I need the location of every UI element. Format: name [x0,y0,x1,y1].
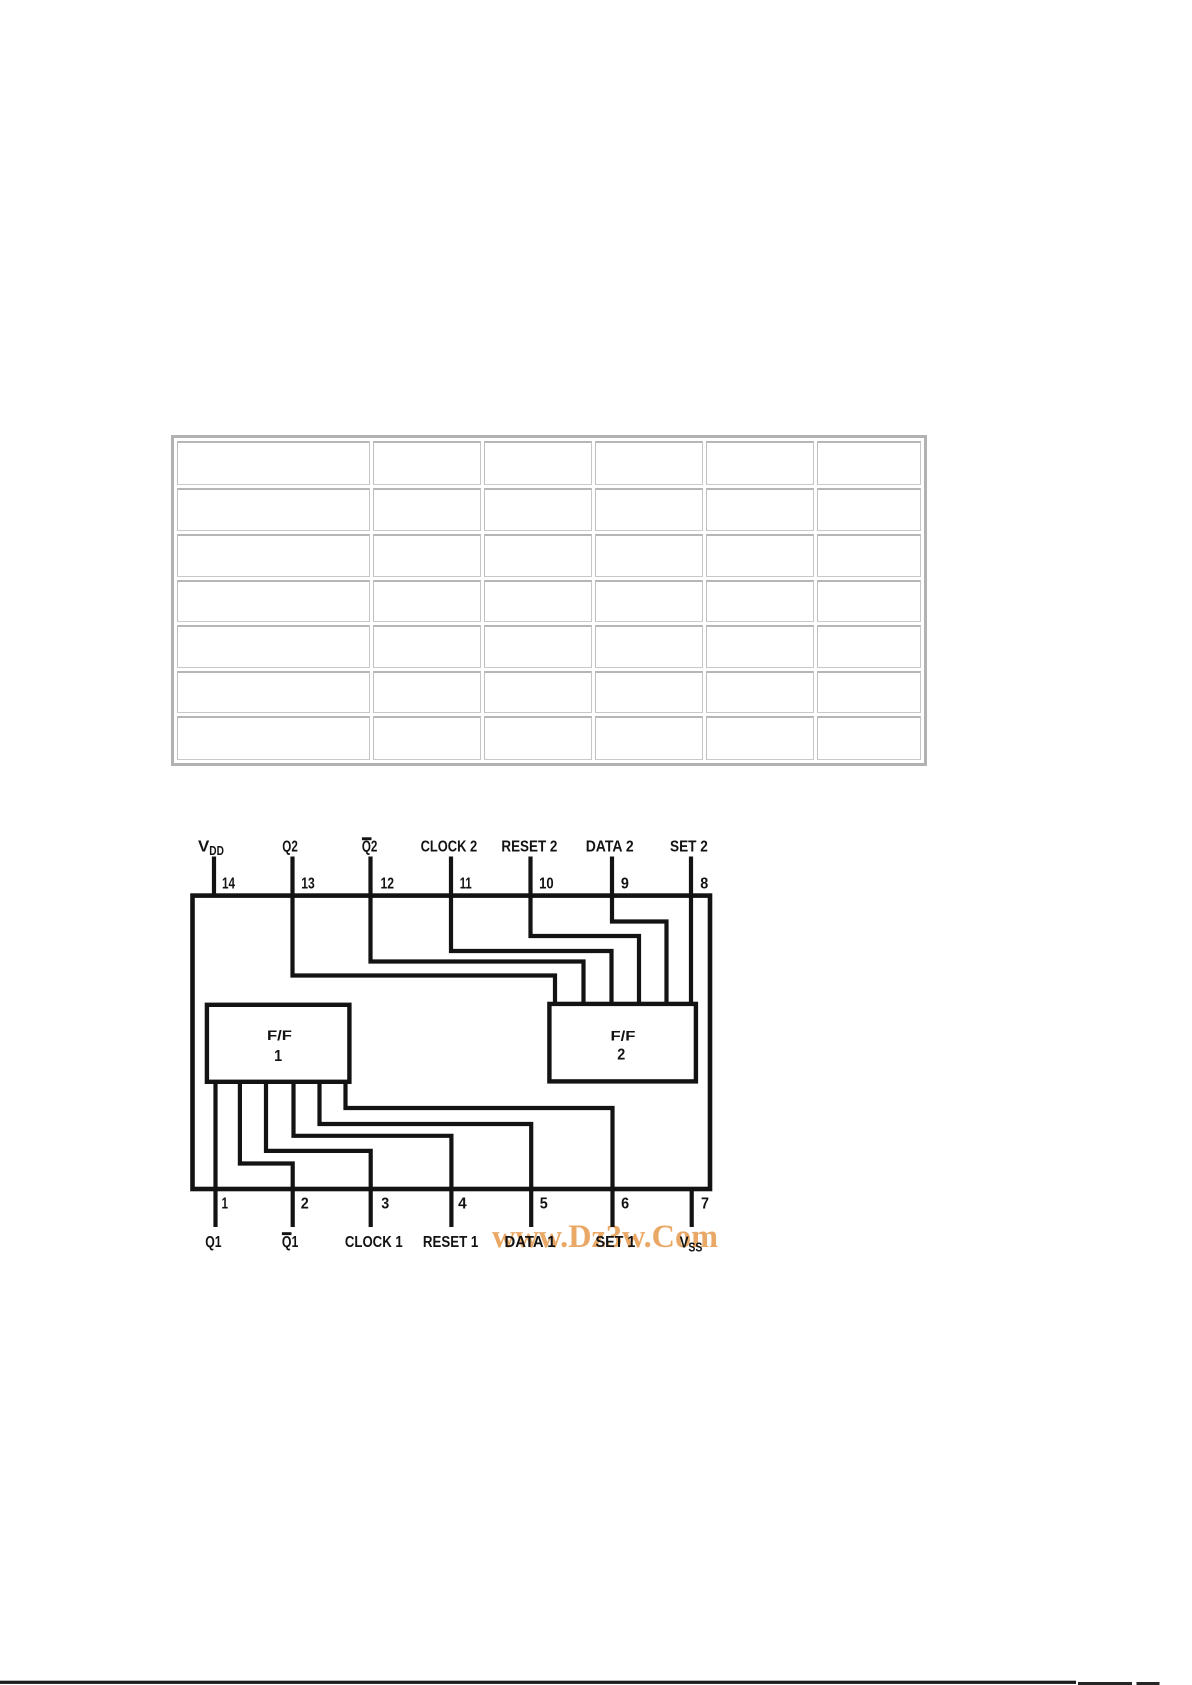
svg-text:DD: DD [209,844,224,858]
svg-text:Q2: Q2 [362,839,378,856]
svg-text:6: 6 [621,1196,629,1213]
svg-text:12: 12 [381,876,395,893]
svg-text:SS: SS [688,1241,702,1255]
svg-text:3: 3 [381,1196,389,1213]
svg-text:2: 2 [617,1047,625,1064]
svg-text:1: 1 [222,1196,229,1213]
svg-text:F/F: F/F [611,1028,636,1043]
svg-text:4: 4 [458,1196,467,1213]
svg-text:Q2: Q2 [282,839,298,856]
svg-text:Q1: Q1 [205,1234,221,1251]
svg-text:F/F: F/F [267,1028,292,1043]
svg-text:SET 2: SET 2 [670,839,708,856]
svg-text:DATA 2: DATA 2 [586,839,634,856]
svg-text:1: 1 [274,1048,282,1065]
svg-text:9: 9 [621,876,629,893]
svg-text:7: 7 [701,1196,709,1213]
svg-text:5: 5 [540,1196,548,1213]
svg-text:8: 8 [700,876,708,893]
svg-text:13: 13 [301,876,315,893]
svg-text:RESET 1: RESET 1 [423,1234,478,1251]
svg-text:DATA 1: DATA 1 [505,1234,556,1251]
svg-text:CLOCK 2: CLOCK 2 [421,839,478,856]
svg-text:2: 2 [301,1196,309,1213]
svg-text:14: 14 [222,876,235,893]
svg-text:CLOCK 1: CLOCK 1 [345,1234,403,1251]
svg-text:11: 11 [460,876,472,893]
svg-text:Q1: Q1 [282,1234,298,1251]
svg-text:V: V [198,839,210,856]
svg-text:SET 1: SET 1 [596,1234,636,1251]
svg-text:RESET 2: RESET 2 [501,839,557,856]
svg-text:10: 10 [539,876,554,893]
